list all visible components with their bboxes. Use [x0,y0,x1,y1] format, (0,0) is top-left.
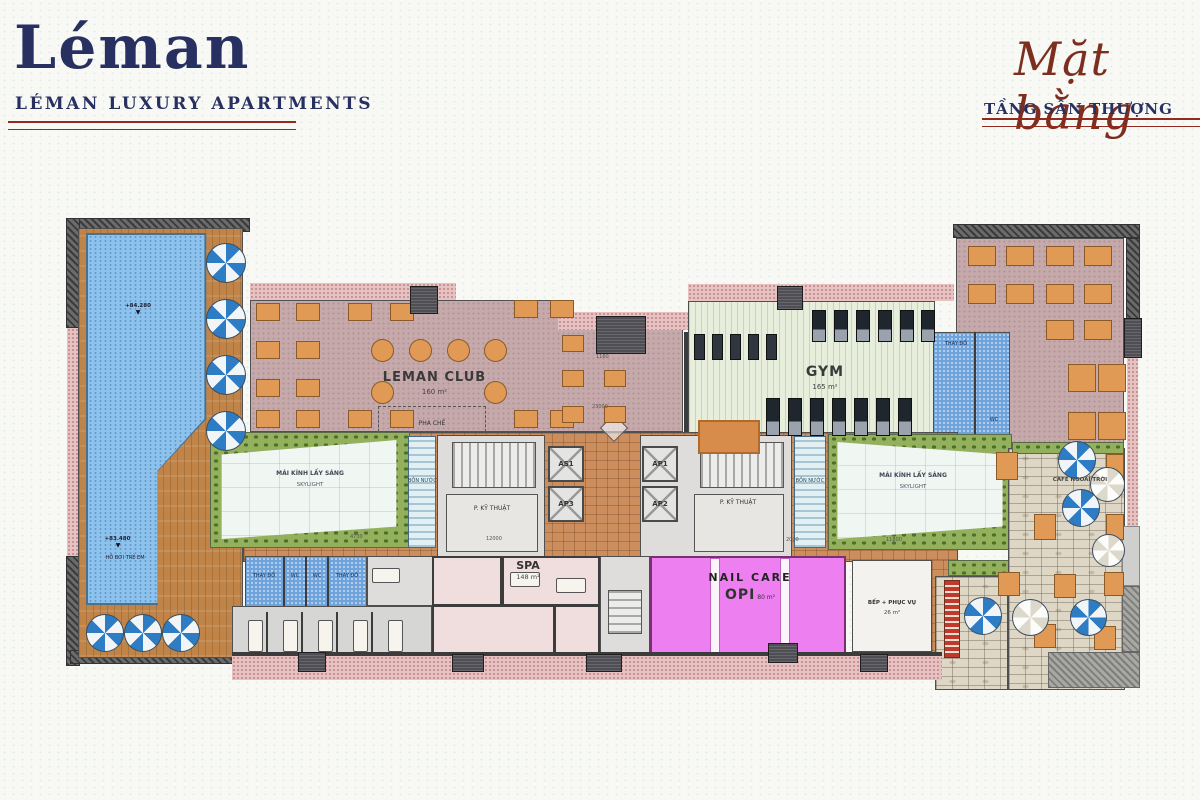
table-icon [1084,246,1112,266]
column [452,654,484,672]
table-icon [1084,320,1112,340]
water-tank-left-label: BỒN NƯỚC [408,479,436,485]
dimension-label: 12000 [486,536,502,542]
column [586,654,622,672]
parapet-wall [953,224,1140,238]
water-tank-right-label: BỒN NƯỚC [794,479,826,485]
gym-equipment-icon [812,310,826,342]
column [596,316,646,354]
table-icon [968,246,996,266]
gym-equipment-icon [694,334,705,360]
gym-equipment-icon [856,310,870,342]
skylight-right-label: MÁI KÍNH LẤY SÁNG [838,473,988,480]
gym-equipment-icon [712,334,723,360]
table-icon [1068,412,1096,440]
table-icon [550,300,574,318]
elevator-ap1: AP1 [642,446,678,482]
table-icon [256,379,280,397]
table-icon [604,370,626,387]
table-icon [1054,574,1076,598]
table-icon [1006,284,1034,304]
gym-equipment-icon [878,310,892,342]
table-icon [1098,364,1126,392]
umbrella-icon [206,243,246,283]
floor-plan: AS1 AP3 AP1 AP2 [0,0,1200,800]
locker-cell-label: THAY ĐỒ [328,574,366,580]
umbrella-icon [1012,599,1049,636]
dimension-label: 23000 [592,404,608,410]
parapet-wall [1126,238,1140,324]
umbrella-icon [964,597,1002,635]
roof-strip [688,284,954,301]
gym-equipment-icon [748,334,759,360]
dimension-label: 4730 [350,534,363,540]
table-icon [256,341,280,359]
water-tank-left [408,436,436,548]
umbrella-icon [1070,599,1107,636]
column [298,652,326,672]
gym-equipment-icon [832,398,846,436]
table-icon [296,341,320,359]
leman-club-label: LEMAN CLUB [352,371,517,386]
umbrella-icon [206,355,246,395]
table-icon [998,572,1020,596]
nail-care-brand: OPI 80 m² [690,588,810,604]
gym-equipment-icon [788,398,802,436]
nail-care-label: NAIL CARE [690,572,810,584]
elevator-ap3: AP3 [548,486,584,522]
gym-equipment-icon [766,334,777,360]
table-icon [256,303,280,321]
water-level-icon: ▼ [108,543,128,550]
column [777,286,803,310]
column [410,286,438,314]
table-icon [1098,412,1126,440]
locker-cell-label: WC [284,574,306,580]
bed-icon [283,620,298,652]
gym-equipment-icon [876,398,890,436]
table-icon [1046,246,1074,266]
elevator-as1: AS1 [548,446,584,482]
table-icon [968,284,996,304]
opi-brand-label: OPI [725,587,755,603]
spa-area-label: 148 m² [498,574,558,581]
skylight-right [834,440,1006,543]
table-icon [447,339,470,362]
bed-icon [388,620,403,652]
spa-label: SPA [498,560,558,572]
dimension-label: 1160 [596,354,609,360]
gym-mat [698,420,760,454]
staircase-left [452,442,536,488]
table-icon [514,300,538,318]
gym-equipment-icon [730,334,741,360]
leman-club-area-label: 160 m² [352,389,517,397]
umbrella-icon [1058,441,1096,479]
table-icon [1034,514,1056,540]
gym-equipment-icon [900,310,914,342]
wall [432,604,602,607]
table-icon [256,410,280,428]
gym-equipment-icon [898,398,912,436]
gym-locker-wc-label: WC [980,418,1008,424]
water-level-icon: ▼ [128,310,148,317]
umbrella-icon [1092,534,1125,567]
wall [327,556,329,608]
gym-locker-label: THAY ĐỒ [938,342,974,348]
bed-icon [556,578,586,593]
umbrella-icon [1062,489,1100,527]
bar-counter [944,580,960,658]
table-icon [296,379,320,397]
cafe-label: CAFE NGOÀI TRỜI [1036,477,1124,483]
table-icon [996,452,1018,480]
skylight-left-sublabel: SKYLIGHT [235,482,385,488]
umbrella-icon [124,614,162,652]
table-icon [1046,284,1074,304]
umbrella-icon [86,614,124,652]
table-icon [562,370,584,387]
pha-che-label: PHA CHẾ [378,421,486,428]
gym-area-label: 165 m² [790,384,860,392]
table-icon [409,339,432,362]
bed-icon [353,620,368,652]
table-icon [1006,246,1034,266]
gym-equipment-icon [810,398,824,436]
roof-notch [558,262,688,312]
lower-roof [1122,586,1140,652]
gym-equipment-icon [766,398,780,436]
bed-icon [248,620,263,652]
table-icon [348,410,372,428]
tech-room-left [446,494,538,552]
table-icon [514,410,538,428]
wall [283,556,285,608]
table-icon [562,335,584,352]
umbrella-icon [206,299,246,339]
nail-care-area-label: 80 m² [757,594,775,601]
bed-icon [318,620,333,652]
wall [305,556,307,608]
table-icon [296,303,320,321]
umbrella-icon [206,411,246,451]
floor-plan-page: Léman LÉMAN LUXURY APARTMENTS Mặt bằng T… [0,0,1200,800]
table-icon [562,406,584,423]
gym-label: GYM [790,365,860,381]
table-icon [1068,364,1096,392]
gym-equipment-icon [921,310,935,342]
tech-room-left-label: P. KỸ THUẬT [452,506,532,513]
tech-room-right-label: P. KỸ THUẬT [698,500,778,507]
elevator-ap2: AP2 [642,486,678,522]
table-icon [1084,284,1112,304]
locker-cell-label: THAY ĐỒ [246,574,282,580]
column [768,643,798,663]
locker-cell-label: WC [306,574,328,580]
skylight-left [218,438,400,541]
lower-roof [1122,526,1140,586]
service-staircase [608,590,642,634]
dimension-label: 11800 [886,537,902,543]
lower-roof [1048,652,1140,688]
column [1124,318,1142,358]
table-icon [1104,572,1124,596]
skylight-left-label: MÁI KÍNH LẤY SÁNG [235,471,385,478]
gym-equipment-icon [834,310,848,342]
umbrella-icon [162,614,200,652]
table-icon [371,339,394,362]
dimension-label: 2000 [786,537,799,543]
table-icon [484,339,507,362]
column [860,654,888,672]
water-tank-right [794,436,826,548]
table-icon [1046,320,1074,340]
skylight-right-sublabel: SKYLIGHT [838,484,988,490]
bed-icon [372,568,400,583]
gym-equipment-icon [854,398,868,436]
kitchen-area-label: 26 m² [854,610,930,616]
kitchen-label: BẾP + PHỤC VỤ [854,600,930,606]
table-icon [296,410,320,428]
kids-pool-label: HỒ BƠI TRẺ EM [90,556,160,562]
table-icon [348,303,372,321]
